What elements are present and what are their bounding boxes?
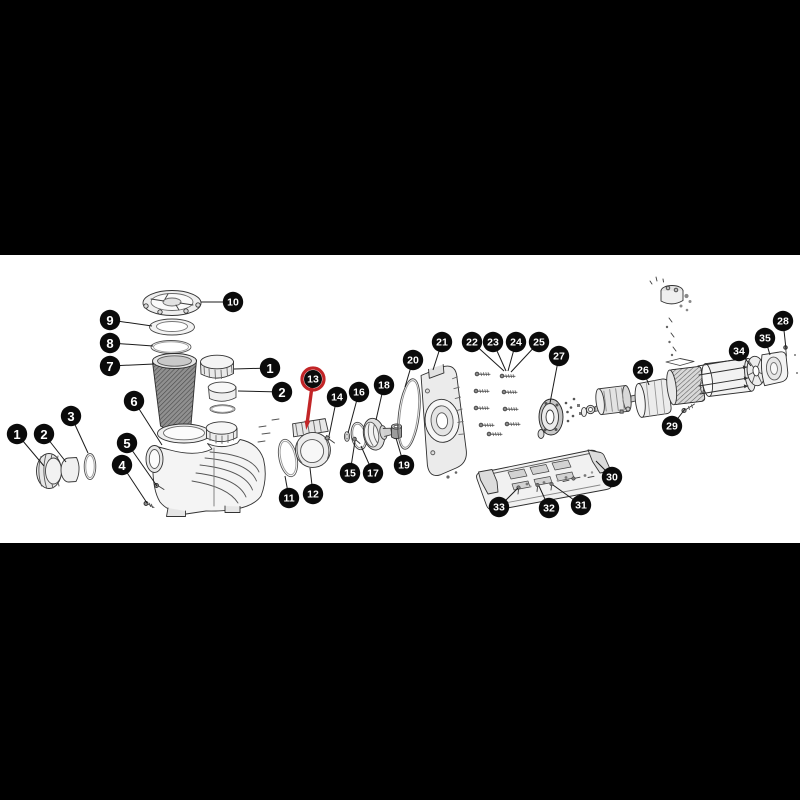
part-strainer-basket <box>153 354 197 430</box>
callout-number: 19 <box>398 460 410 472</box>
callout-number: 17 <box>367 468 379 480</box>
part-union-cap <box>201 355 234 379</box>
callout-20[interactable]: 20 <box>403 350 423 370</box>
callout-15[interactable]: 15 <box>340 463 360 483</box>
part-terminal-box <box>650 277 694 366</box>
part-motor-housing <box>633 378 671 417</box>
callout-number: 1 <box>13 427 20 442</box>
callout-30[interactable]: 30 <box>602 467 622 487</box>
loose-bolt <box>455 471 458 474</box>
callout-number: 15 <box>344 468 356 480</box>
callout-number: 11 <box>283 493 294 505</box>
callout-33[interactable]: 33 <box>489 497 509 517</box>
callout-number: 9 <box>106 313 113 328</box>
part-washer-16 <box>344 432 349 442</box>
callout-number: 26 <box>637 365 649 377</box>
callout-5[interactable]: 5 <box>117 433 137 453</box>
callout-number: 29 <box>666 421 678 433</box>
part-union-adapter <box>208 382 236 401</box>
loose-bolt <box>446 475 449 478</box>
part-bearing-flange <box>538 399 563 439</box>
callout-number: 23 <box>487 337 499 349</box>
part-fan-cover <box>760 351 788 385</box>
part-impeller <box>361 415 394 451</box>
diagram-canvas: 1234567891012111213141516171819202122232… <box>0 255 800 543</box>
callout-23[interactable]: 23 <box>483 332 503 352</box>
callout-2[interactable]: 2 <box>34 424 54 444</box>
callout-17[interactable]: 17 <box>363 463 383 483</box>
callout-12[interactable]: 12 <box>303 484 323 504</box>
callout-11[interactable]: 11 <box>279 488 299 508</box>
callout-16[interactable]: 16 <box>349 382 369 402</box>
callout-number: 33 <box>493 502 505 514</box>
callout-34[interactable]: 34 <box>729 341 749 361</box>
callout-number: 35 <box>759 333 771 345</box>
part-seal-plate-oring <box>394 377 423 450</box>
callout-number: 12 <box>307 489 319 501</box>
callout-1[interactable]: 1 <box>260 358 280 378</box>
callout-4[interactable]: 4 <box>112 455 132 475</box>
callout-8[interactable]: 8 <box>100 333 120 353</box>
callout-24[interactable]: 24 <box>506 332 526 352</box>
callout-2[interactable]: 2 <box>272 382 292 402</box>
callout-26[interactable]: 26 <box>633 360 653 380</box>
callout-19[interactable]: 19 <box>394 455 414 475</box>
callout-28[interactable]: 28 <box>773 311 793 331</box>
callout-number: 30 <box>606 472 618 484</box>
part-union-oring <box>210 405 235 413</box>
callout-7[interactable]: 7 <box>100 356 120 376</box>
callout-number: 4 <box>118 458 126 473</box>
callout-number: 24 <box>510 337 522 349</box>
callout-3[interactable]: 3 <box>61 406 81 426</box>
loose-hardware <box>565 398 582 423</box>
callout-number: 32 <box>543 503 555 515</box>
callout-number: 20 <box>407 355 419 367</box>
callout-32[interactable]: 32 <box>539 498 559 518</box>
callout-22[interactable]: 22 <box>462 332 482 352</box>
part-screw-set <box>474 371 520 437</box>
callout-number: 13 <box>307 374 319 386</box>
hardware-dashes <box>258 419 279 442</box>
part-rotor-shaft <box>581 385 638 417</box>
callout-27[interactable]: 27 <box>549 346 569 366</box>
callout-number: 1 <box>266 361 273 376</box>
callout-number: 25 <box>533 337 545 349</box>
part-drain-cap <box>37 454 62 489</box>
callout-number: 8 <box>106 336 113 351</box>
callout-number: 27 <box>553 351 565 363</box>
part-lid-oring <box>151 341 191 354</box>
callout-35[interactable]: 35 <box>755 328 775 348</box>
part-lid-ring <box>150 319 195 335</box>
callout-25[interactable]: 25 <box>529 332 549 352</box>
callout-number: 5 <box>123 436 130 451</box>
part-drain-oring <box>84 454 96 480</box>
callout-number: 10 <box>227 297 239 309</box>
callout-number: 16 <box>353 387 365 399</box>
callout-10[interactable]: 10 <box>223 292 243 312</box>
callout-number: 7 <box>106 359 113 374</box>
part-screw-4 <box>144 502 154 508</box>
callout-18[interactable]: 18 <box>374 375 394 395</box>
callout-6[interactable]: 6 <box>124 391 144 411</box>
callout-number: 2 <box>40 427 47 442</box>
callout-number: 34 <box>733 346 745 358</box>
part-strainer-lid <box>143 291 201 316</box>
callout-1[interactable]: 1 <box>7 424 27 444</box>
callout-number: 31 <box>575 500 587 512</box>
diagram-art <box>37 277 799 517</box>
callout-21[interactable]: 21 <box>432 332 452 352</box>
exploded-diagram: 1234567891012111213141516171819202122232… <box>0 255 800 543</box>
callout-number: 14 <box>331 392 343 404</box>
callout-14[interactable]: 14 <box>327 387 347 407</box>
callout-number: 22 <box>466 337 478 349</box>
part-pump-housing <box>146 422 265 517</box>
callout-number: 3 <box>67 409 74 424</box>
callout-number: 18 <box>378 380 390 392</box>
callout-number: 21 <box>436 337 448 349</box>
callout-31[interactable]: 31 <box>571 495 591 515</box>
callout-9[interactable]: 9 <box>100 310 120 330</box>
callout-29[interactable]: 29 <box>662 416 682 436</box>
callout-number: 6 <box>130 394 137 409</box>
part-drain-plug <box>61 458 79 483</box>
part-seal-plate <box>419 363 468 476</box>
callout-number: 28 <box>777 316 789 328</box>
callout-13[interactable]: 13 <box>302 368 324 390</box>
callout-number: 2 <box>278 385 285 400</box>
